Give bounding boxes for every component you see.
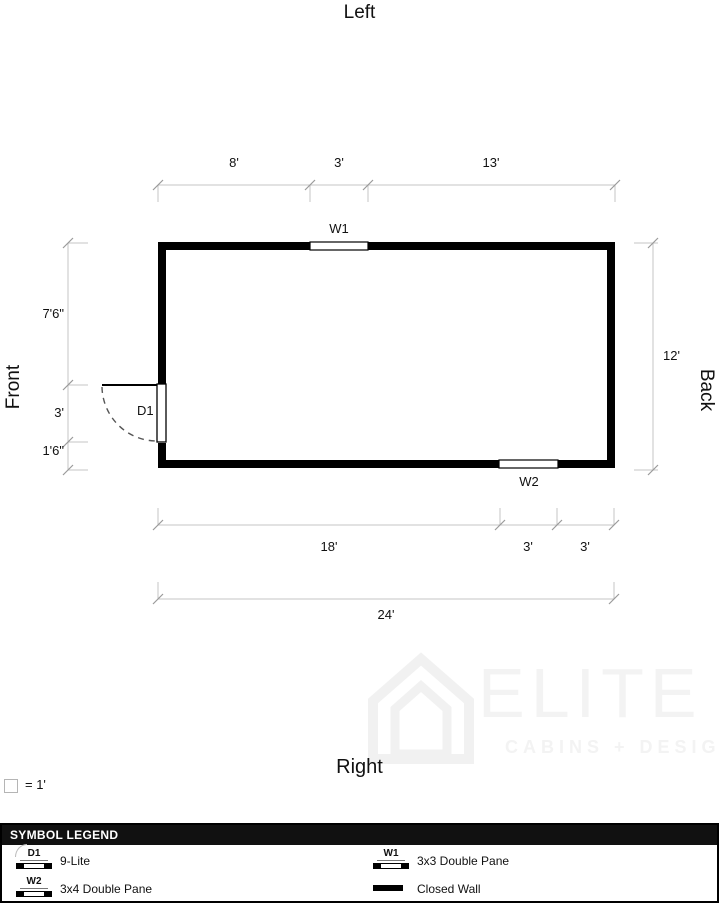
floor-plan-page: ELITE CABINS + DESIGN Left Right Front B… [0,0,719,903]
dim-left-3: 1'6" [16,443,64,458]
dim-bottom-3: 3' [555,539,615,554]
dim-top-1: 8' [204,155,264,170]
legend-label-9lite: 9-Lite [60,854,90,868]
exterior-walls [158,242,615,468]
window-w1-label: W1 [309,221,369,236]
legend-window-w1-icon: W1 [373,848,409,869]
dim-top-2: 3' [309,155,369,170]
watermark-title: ELITE [478,658,703,728]
window-w2 [499,460,558,468]
symbol-legend-header: SYMBOL LEGEND [2,825,717,845]
door-d1 [102,384,168,443]
dim-bottom-2: 3' [498,539,558,554]
scale-note: = 1' [25,777,46,792]
door-d1-label: D1 [137,403,154,418]
legend-label-3x4: 3x4 Double Pane [60,882,152,896]
dim-overall: 24' [356,607,416,622]
window-w2-label: W2 [499,474,559,489]
side-label-bottom: Right [0,756,719,779]
symbol-legend: SYMBOL LEGEND D1 9-Lite W2 3x4 Double Pa… [0,823,719,903]
legend-door-d1-icon: D1 [16,848,52,869]
dim-left-2: 3' [16,405,64,420]
floor-plan-drawing [0,0,719,660]
legend-closed-wall-icon [373,885,403,891]
dim-left-1: 7'6" [16,306,64,321]
legend-label-3x3: 3x3 Double Pane [417,854,509,868]
window-w1 [310,242,368,250]
watermark-house-icon [365,650,477,765]
legend-label-closed-wall: Closed Wall [417,882,481,896]
dim-right-1: 12' [663,348,680,363]
scale-square-icon [4,779,18,793]
legend-window-w2-icon: W2 [16,876,52,897]
dim-bottom-1: 18' [299,539,359,554]
watermark-subtitle: CABINS + DESIGN [505,737,719,758]
dim-top-3: 13' [461,155,521,170]
door-swing-mini-icon [15,844,27,857]
